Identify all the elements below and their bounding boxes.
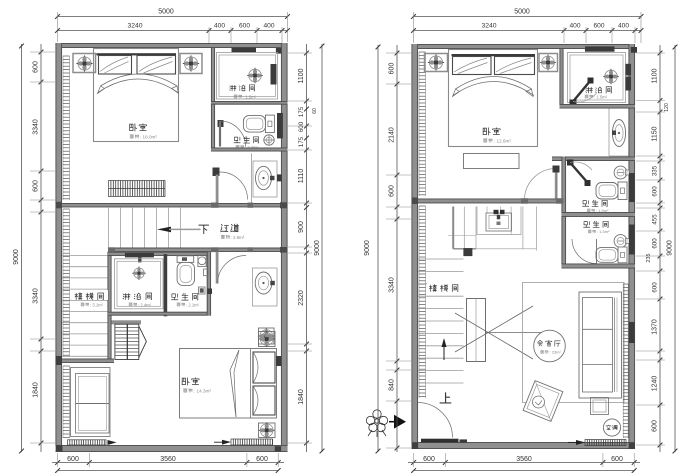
svg-text:3340: 3340	[33, 119, 40, 135]
svg-text:1240: 1240	[652, 376, 659, 392]
svg-text:2140: 2140	[389, 127, 396, 143]
svg-text:: 12.6m²: : 12.6m²	[494, 139, 511, 144]
svg-text:: 2.4m²: : 2.4m²	[138, 302, 152, 307]
svg-text:600: 600	[33, 180, 40, 192]
svg-text:1100: 1100	[652, 68, 659, 83]
svg-text:1110: 1110	[298, 169, 305, 184]
svg-text:400: 400	[569, 23, 580, 30]
svg-text:3340: 3340	[389, 277, 396, 293]
svg-text:600: 600	[256, 456, 268, 463]
svg-text:600: 600	[593, 23, 604, 30]
svg-text:3560: 3560	[160, 456, 176, 463]
svg-text:600: 600	[239, 23, 250, 30]
svg-text:600: 600	[389, 185, 396, 197]
svg-text:600: 600	[389, 63, 396, 75]
svg-text:600: 600	[67, 456, 79, 463]
svg-text:2320: 2320	[298, 290, 305, 306]
svg-text:600: 600	[33, 61, 40, 73]
svg-text:400: 400	[214, 23, 225, 30]
svg-text:9000: 9000	[314, 240, 321, 256]
svg-text:3240: 3240	[127, 23, 142, 30]
svg-text:1840: 1840	[33, 382, 40, 398]
svg-text:600: 600	[652, 420, 659, 432]
svg-text:400: 400	[263, 23, 274, 30]
svg-text:5000: 5000	[158, 9, 174, 16]
svg-text:600: 600	[298, 121, 305, 132]
svg-text:1370: 1370	[652, 319, 659, 335]
svg-text:: 2.1m²: : 2.1m²	[186, 302, 200, 307]
svg-text:175: 175	[298, 106, 305, 117]
svg-text:840: 840	[389, 379, 396, 391]
svg-text:600: 600	[652, 238, 659, 249]
svg-text:3240: 3240	[481, 23, 496, 30]
svg-text:5000: 5000	[514, 9, 530, 16]
svg-text:: 1.5m²: : 1.5m²	[243, 94, 257, 99]
svg-text:175: 175	[298, 136, 305, 147]
svg-text:120: 120	[664, 103, 670, 112]
svg-text:: 1.5m²: : 1.5m²	[597, 229, 610, 234]
svg-text:600: 600	[611, 456, 623, 463]
svg-text:: 14.3m²: : 14.3m²	[194, 389, 211, 394]
svg-text:9000: 9000	[667, 240, 674, 256]
svg-text:455: 455	[652, 214, 659, 225]
svg-text:1150: 1150	[652, 126, 659, 141]
svg-text:600: 600	[652, 282, 659, 293]
svg-text:: 23m²: : 23m²	[550, 350, 562, 355]
svg-text:3340: 3340	[33, 288, 40, 304]
svg-text:9000: 9000	[13, 249, 20, 265]
svg-text:235: 235	[646, 254, 652, 263]
svg-text:60: 60	[312, 108, 318, 114]
svg-text:: 3.1m²: : 3.1m²	[90, 302, 104, 307]
svg-text:9000: 9000	[364, 240, 371, 256]
svg-text:400: 400	[618, 23, 629, 30]
svg-text:600: 600	[652, 186, 659, 197]
svg-text:: 2.9m²: : 2.9m²	[231, 235, 245, 240]
svg-text:3560: 3560	[516, 456, 532, 463]
svg-text:335: 335	[652, 165, 659, 176]
svg-text:: 1.5m²: : 1.5m²	[594, 94, 608, 99]
svg-text:600: 600	[423, 456, 435, 463]
svg-text:1840: 1840	[298, 389, 305, 405]
svg-text:: 18.0m²: : 18.0m²	[140, 135, 157, 140]
svg-text:1100: 1100	[298, 68, 305, 83]
svg-text:900: 900	[298, 221, 305, 233]
